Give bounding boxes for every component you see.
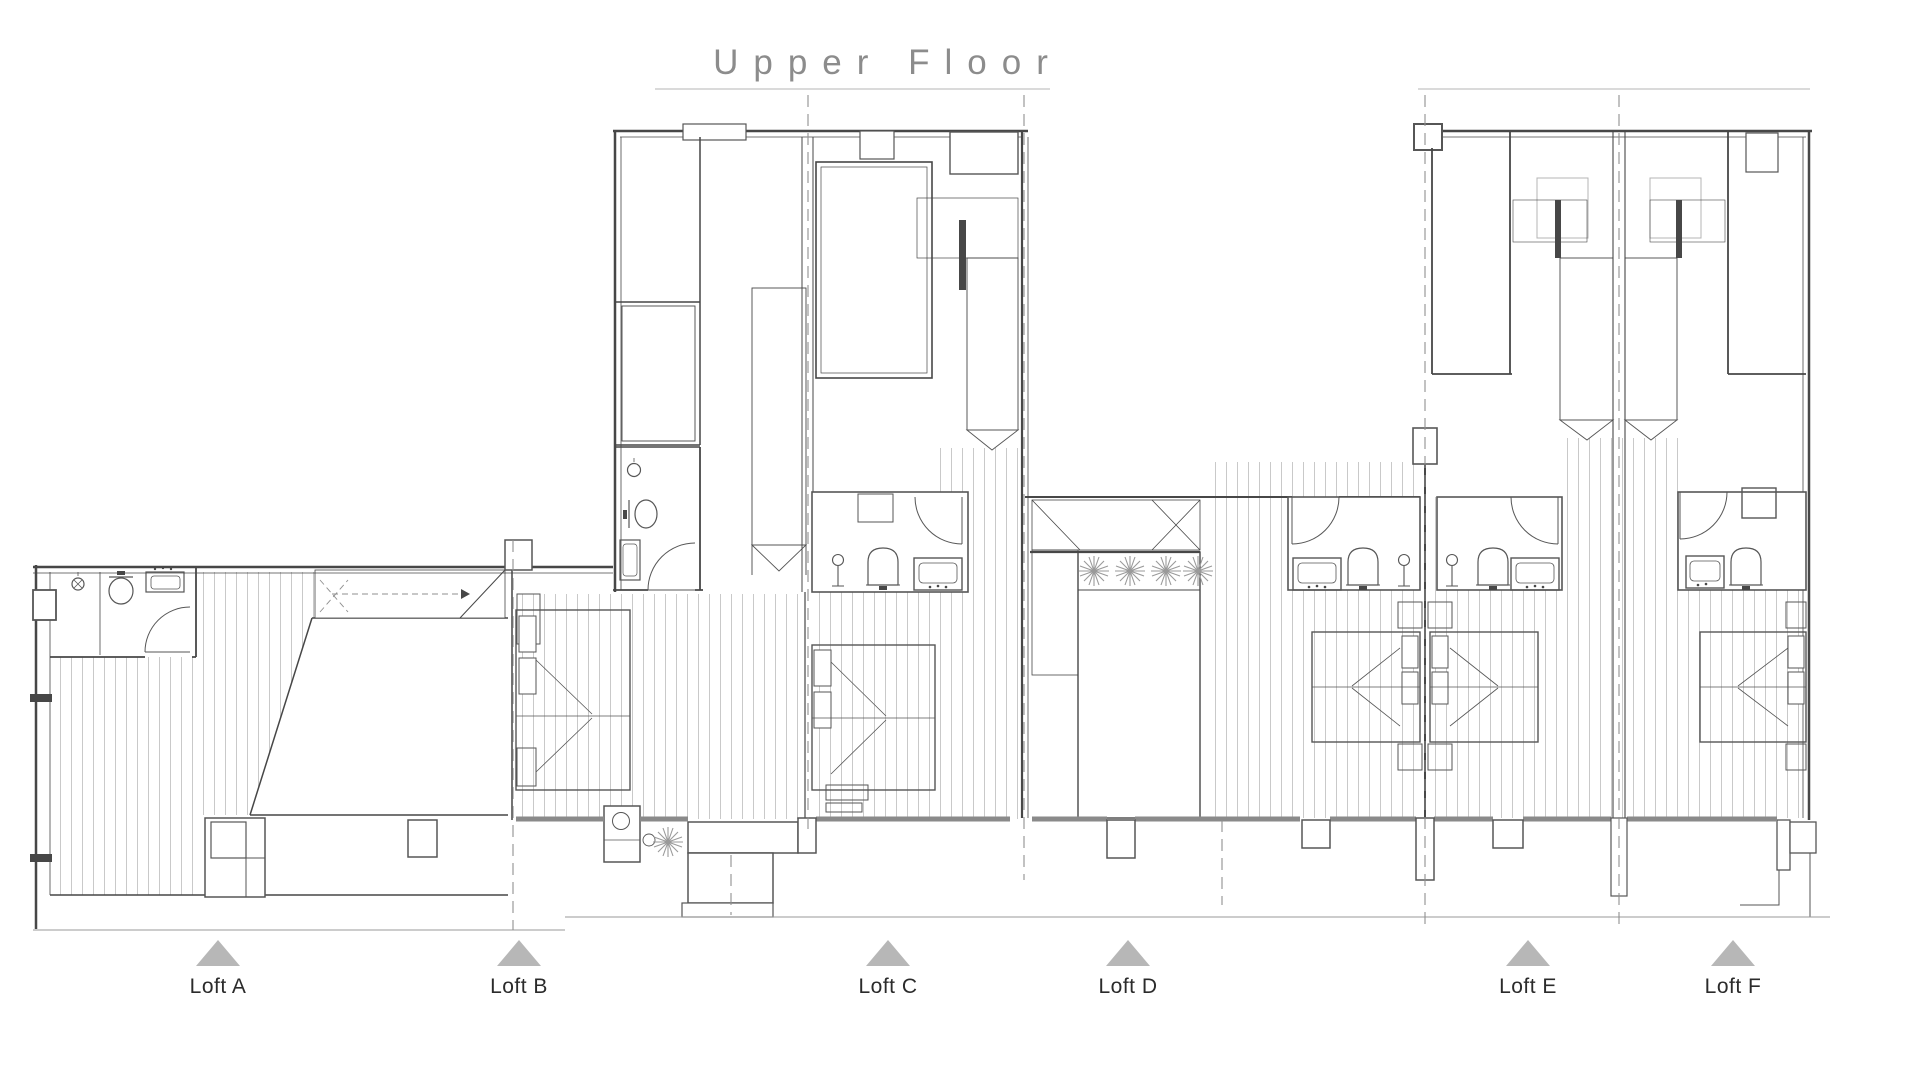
stair-rail <box>1555 200 1561 258</box>
terrace-platform <box>682 822 798 917</box>
loft-d-label: Loft D <box>1098 975 1157 998</box>
window <box>683 124 746 140</box>
loft-d-marker-icon <box>1106 940 1150 966</box>
floor-hatch-loft-e-stair-outlet <box>1560 438 1613 497</box>
wall-break <box>30 854 52 862</box>
loft-b-marker-icon <box>497 940 541 966</box>
column <box>798 818 816 853</box>
bathroom-e <box>1437 497 1562 590</box>
column <box>1107 820 1135 858</box>
loft-a-label: Loft A <box>190 975 247 998</box>
stair-loft-e <box>1513 200 1613 440</box>
stair-loft-f <box>1625 200 1725 440</box>
wall-break <box>30 694 52 702</box>
terrace-room <box>1432 132 1512 374</box>
door-swing-icon <box>648 543 695 590</box>
column <box>1414 124 1442 150</box>
shower-drain-icon <box>628 458 641 477</box>
closet <box>622 306 695 441</box>
page-title: Upper Floor <box>713 43 1063 82</box>
floor-hatch-loft-b <box>516 594 806 819</box>
floor-hatch-loft-f-stair-outlet <box>1622 438 1678 497</box>
plant-icon <box>653 827 683 857</box>
loft-e-label: Loft E <box>1499 975 1557 998</box>
upper-room <box>1728 131 1806 374</box>
closet <box>860 131 894 159</box>
loft-a-marker-icon <box>196 940 240 966</box>
bathroom-f <box>1678 488 1806 590</box>
column <box>1493 820 1523 848</box>
loft-e-marker-icon <box>1506 940 1550 966</box>
double-height-void <box>1030 552 1200 818</box>
loft-f-label: Loft F <box>1705 975 1762 998</box>
interior-walls <box>615 137 700 447</box>
floor-plan-page: Upper Floor Loft A Loft B Loft C Loft D … <box>0 0 1920 1080</box>
bathroom-c <box>812 492 968 592</box>
loft-c-marker-icon <box>866 940 910 966</box>
loft-b-label: Loft B <box>490 975 548 998</box>
stair-rail <box>1676 200 1682 258</box>
loft-f-marker-icon <box>1711 940 1755 966</box>
wardrobe <box>950 132 1018 174</box>
toilet-icon <box>623 500 657 528</box>
terrace-steps <box>1740 820 1816 917</box>
bedroom-upper <box>816 131 932 378</box>
stair-loft-b <box>752 288 806 575</box>
terrace-steps <box>205 818 265 897</box>
bathroom-d <box>1288 497 1420 590</box>
column <box>1302 820 1330 848</box>
column <box>505 540 532 570</box>
sink-icon <box>620 540 640 580</box>
bathroom-a <box>48 568 196 657</box>
stair-rail <box>959 220 966 290</box>
wardrobe <box>1537 178 1588 238</box>
floor-plan-canvas: Upper Floor Loft A Loft B Loft C Loft D … <box>0 0 1920 1080</box>
column <box>408 820 437 857</box>
wardrobe <box>1650 178 1701 238</box>
unit-markers: Loft A Loft B Loft C Loft D Loft E Loft … <box>190 940 1762 998</box>
loft-c-label: Loft C <box>858 975 917 998</box>
closet <box>1746 133 1778 172</box>
column <box>33 590 56 620</box>
